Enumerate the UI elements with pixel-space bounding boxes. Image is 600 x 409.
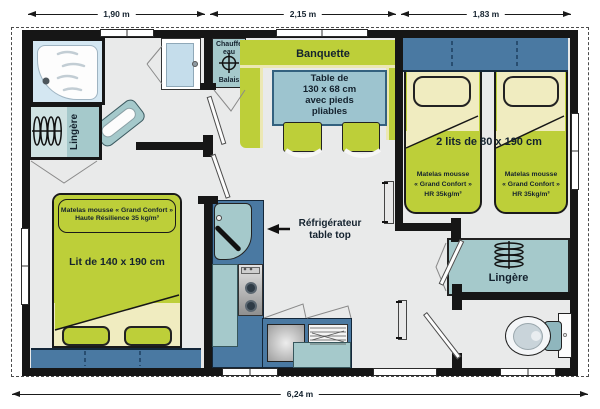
arrowhead-left-icon bbox=[28, 11, 36, 17]
dimension-bottom-total: 6,24 m bbox=[12, 390, 588, 398]
hangers-right-icon bbox=[495, 241, 523, 269]
dimension-top-left: 1,90 m bbox=[28, 10, 205, 18]
fridge-arrow-icon bbox=[267, 224, 290, 234]
dimension-top-left-value: 1,90 m bbox=[97, 9, 135, 19]
heater-end-caps bbox=[382, 183, 402, 338]
twin-mattress-label-right: Matelas mousse « Grand Confort » HR 35kg… bbox=[494, 170, 568, 200]
hangers-left-icon bbox=[32, 117, 62, 145]
twin-mattress-right-line-1: Matelas mousse bbox=[494, 170, 568, 180]
arrowhead-left-icon bbox=[401, 11, 409, 17]
arrowhead-right-icon bbox=[580, 391, 588, 397]
fridge-label-line-1: Réfrigérateur bbox=[288, 218, 372, 230]
fridge-label: Réfrigérateur table top bbox=[288, 218, 372, 242]
dimension-top-right-value: 1,83 m bbox=[467, 9, 505, 19]
shower-drain-icon bbox=[43, 78, 50, 85]
twin-mattress-right-line-2: « Grand Confort » bbox=[494, 180, 568, 190]
arrowhead-right-icon bbox=[197, 11, 205, 17]
shelf-dashed-dividers bbox=[85, 41, 517, 366]
arrowhead-right-icon bbox=[388, 11, 396, 17]
arrowhead-left-icon bbox=[210, 11, 218, 17]
arrowhead-left-icon bbox=[12, 391, 20, 397]
dimension-top-middle: 2,15 m bbox=[210, 10, 396, 18]
twin-beds-title: 2 lits de 80 x 190 cm bbox=[418, 136, 560, 149]
twin-mattress-label-left: Matelas mousse « Grand Confort » HR 35kg… bbox=[405, 170, 481, 200]
stove-vent-dots bbox=[244, 268, 253, 271]
plan-linework bbox=[0, 0, 600, 409]
banquette-label: Banquette bbox=[255, 48, 391, 61]
drainer-lines bbox=[310, 328, 346, 344]
twin-mattress-right-line-3: HR 35kg/m³ bbox=[494, 190, 568, 200]
chair-backrest-arcs bbox=[286, 150, 380, 156]
arrowhead-right-icon bbox=[563, 11, 571, 17]
window-dividers bbox=[22, 30, 578, 375]
master-bed-title: Lit de 140 x 190 cm bbox=[56, 256, 178, 268]
twin-mattress-left-line-2: « Grand Confort » bbox=[405, 180, 481, 190]
shower-waves-icon bbox=[58, 52, 84, 90]
dimension-top-middle-value: 2,15 m bbox=[284, 9, 322, 19]
dimension-bottom-value: 6,24 m bbox=[281, 389, 319, 399]
fridge-label-line-2: table top bbox=[288, 230, 372, 242]
water-heater-valve-icon bbox=[219, 53, 239, 73]
dimension-top-right: 1,83 m bbox=[401, 10, 571, 18]
twin-mattress-left-line-3: HR 35kg/m³ bbox=[405, 190, 481, 200]
twin-mattress-left-line-1: Matelas mousse bbox=[405, 170, 481, 180]
floorplan-canvas: Lingère Chauffe eau Balais Table de 130 … bbox=[0, 0, 600, 409]
